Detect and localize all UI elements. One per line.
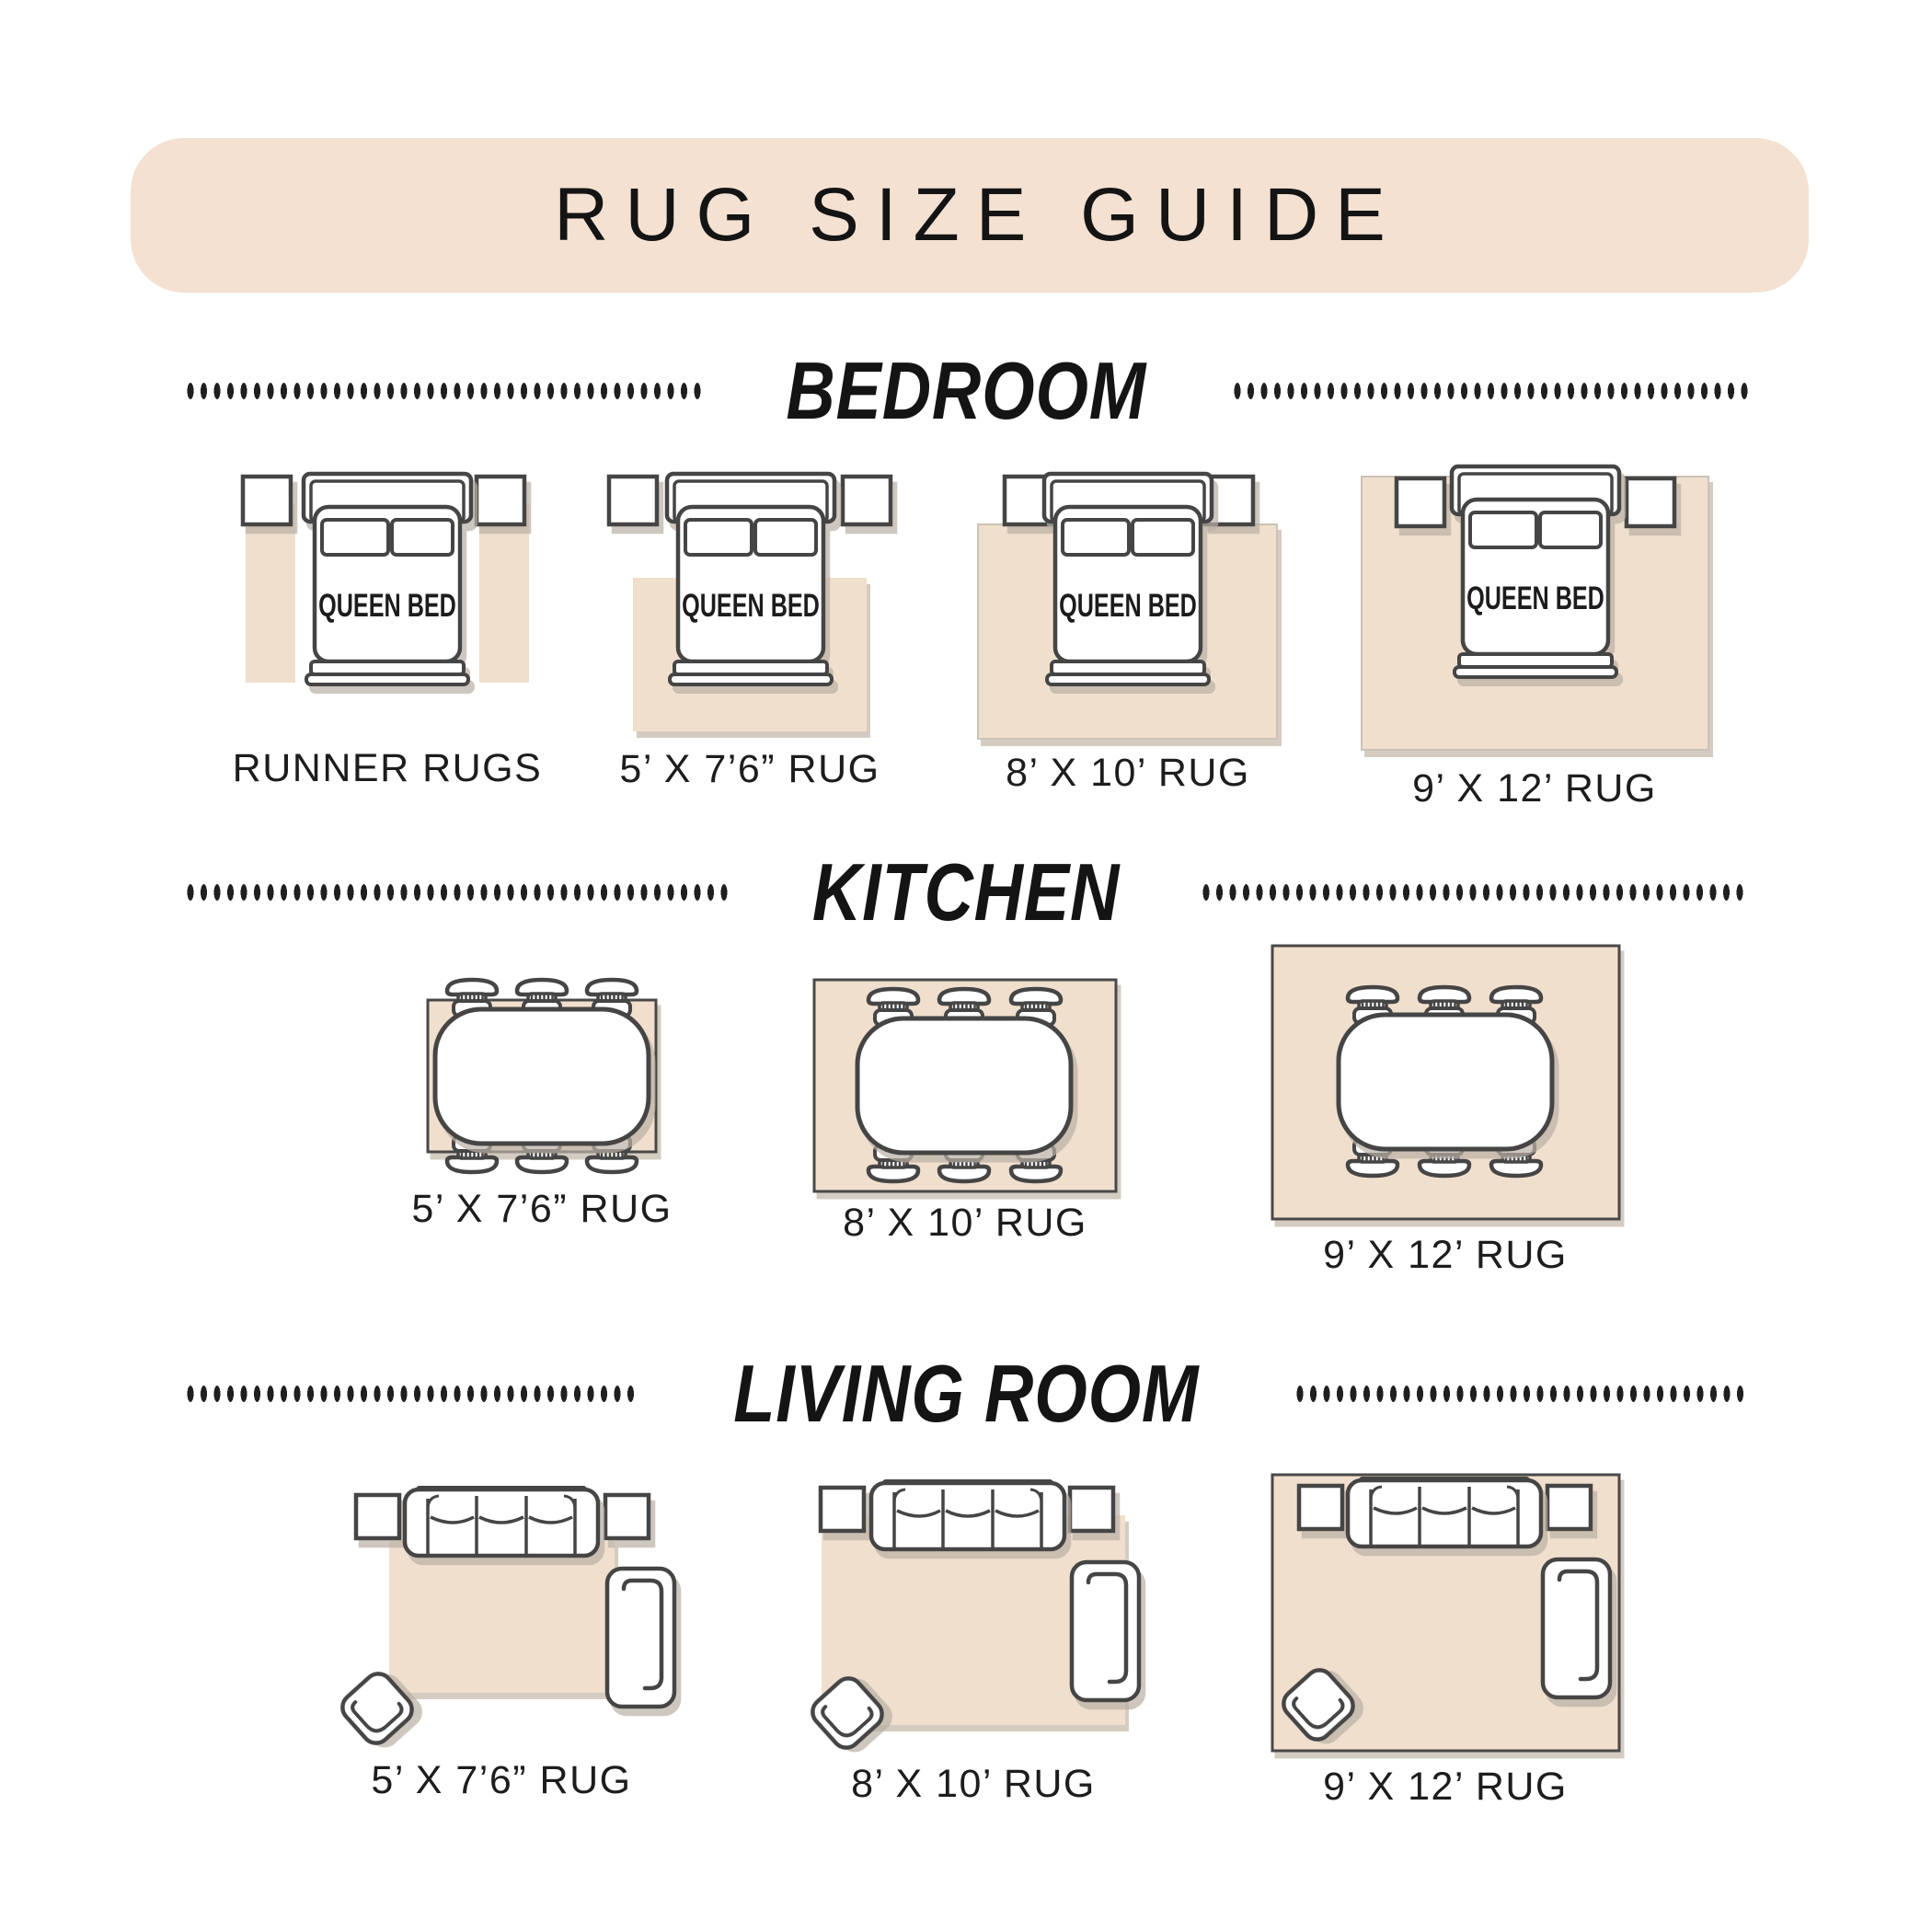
dotted-divider-right: [1294, 1384, 1748, 1404]
caption-living-8x10: 8’ X 10’ RUG: [851, 1762, 1096, 1807]
section-header-bedroom: BEDROOM: [0, 350, 1932, 432]
queen-bed-icon: QUEEN BED: [1044, 474, 1212, 684]
bed-label: QUEEN BED: [682, 588, 820, 624]
figure-living-room-8x10: [800, 1472, 1145, 1757]
section-title-bedroom: BEDROOM: [786, 344, 1146, 438]
side-table-icon: [1299, 1486, 1342, 1529]
queen-bed-icon: QUEEN BED: [1452, 466, 1619, 677]
caption-bedroom-8x10: 8’ X 10’ RUG: [1006, 751, 1250, 796]
section-header-living-room: LIVING ROOM: [0, 1352, 1932, 1435]
side-table-icon: [605, 1495, 649, 1538]
queen-bed-icon: QUEEN BED: [667, 474, 834, 684]
page-title: RUG SIZE GUIDE: [537, 172, 1402, 259]
figure-living-room-9x12: [1270, 1470, 1628, 1757]
runner-rug-right: [479, 503, 529, 683]
side-table-icon: [821, 1488, 864, 1531]
sofa-icon: [871, 1479, 1064, 1549]
section-title-living-room: LIVING ROOM: [733, 1347, 1199, 1441]
figure-living-room-5x76: [331, 1479, 685, 1755]
figure-bedroom-9x12: QUEEN BED: [1357, 460, 1716, 754]
dotted-divider-right: [1200, 882, 1748, 903]
nightstand-icon: [1397, 478, 1444, 526]
side-table-icon: [356, 1495, 399, 1538]
chaise-icon: [1543, 1559, 1610, 1697]
figure-kitchen-5x76: [419, 952, 676, 1191]
bed-label: QUEEN BED: [1059, 588, 1197, 624]
queen-bed-icon: QUEEN BED: [304, 474, 471, 684]
caption-kitchen-9x12: 9’ X 12’ RUG: [1323, 1233, 1568, 1278]
nightstand-icon: [1627, 478, 1674, 526]
dotted-divider-right: [1231, 381, 1748, 401]
figure-kitchen-8x10: [810, 961, 1132, 1219]
nightstand-icon: [243, 477, 291, 524]
sofa-icon: [1348, 1477, 1541, 1547]
bed-label: QUEEN BED: [318, 588, 456, 624]
chaise-icon: [607, 1569, 674, 1707]
caption-bedroom-runner: RUNNER RUGS: [233, 746, 543, 791]
chaise-icon: [1072, 1562, 1139, 1700]
side-table-icon: [1547, 1486, 1591, 1529]
caption-bedroom-9x12: 9’ X 12’ RUG: [1412, 766, 1657, 811]
dining-table-icon: [1339, 1015, 1552, 1149]
bed-label: QUEEN BED: [1466, 581, 1604, 616]
nightstand-icon: [609, 477, 657, 524]
rug-size-guide: RUG SIZE GUIDE BEDROOM QUEEN BED RUNNER …: [0, 0, 1932, 1932]
figure-kitchen-9x12: [1268, 941, 1636, 1226]
dining-table-icon: [857, 1018, 1071, 1153]
nightstand-icon: [477, 477, 524, 524]
caption-living-9x12: 9’ X 12’ RUG: [1323, 1765, 1568, 1810]
caption-bedroom-5x76: 5’ X 7’6” RUG: [619, 747, 880, 792]
caption-living-5x76: 5’ X 7’6” RUG: [371, 1758, 631, 1803]
title-banner: RUG SIZE GUIDE: [131, 138, 1809, 293]
caption-kitchen-5x76: 5’ X 7’6” RUG: [411, 1187, 672, 1232]
dotted-divider-left: [184, 1384, 638, 1404]
sofa-icon: [405, 1486, 598, 1556]
runner-rug-left: [246, 503, 295, 683]
figure-bedroom-5x76: QUEEN BED: [603, 465, 897, 741]
section-header-kitchen: KITCHEN: [0, 851, 1932, 934]
section-title-kitchen: KITCHEN: [812, 845, 1120, 939]
side-table-icon: [1070, 1488, 1113, 1531]
dining-table-icon: [435, 1009, 649, 1144]
dotted-divider-left: [184, 882, 732, 903]
rug-shape: [389, 1541, 615, 1693]
dotted-divider-left: [184, 381, 701, 401]
figure-bedroom-runner-rugs: QUEEN BED: [241, 465, 535, 695]
caption-kitchen-8x10: 8’ X 10’ RUG: [843, 1201, 1087, 1246]
nightstand-icon: [843, 477, 891, 524]
figure-bedroom-8x10: QUEEN BED: [971, 460, 1283, 745]
